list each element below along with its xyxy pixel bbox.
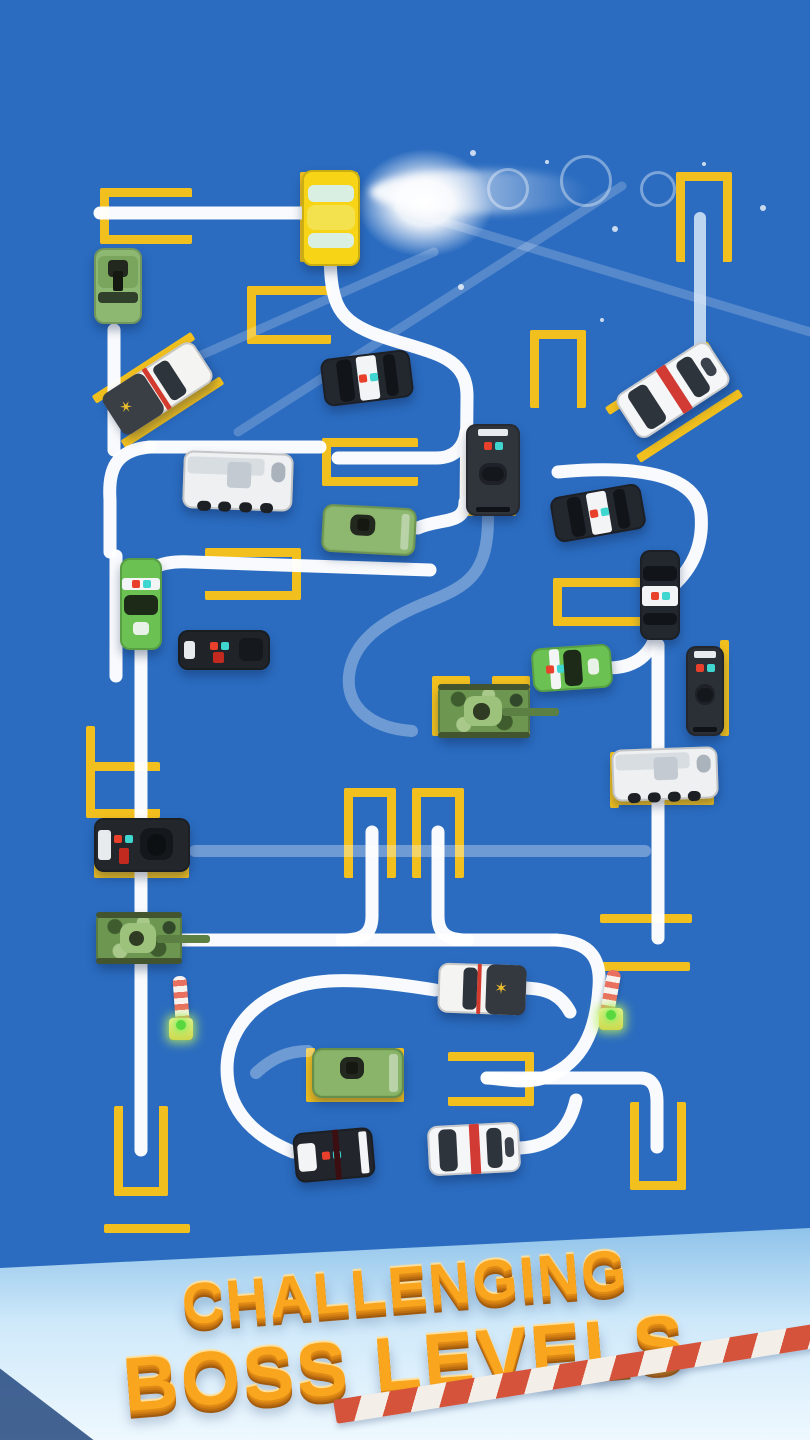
vehicle-police-muscle-right[interactable] <box>549 482 648 543</box>
vehicle-part <box>651 592 659 600</box>
vehicle-green-pickup[interactable] <box>94 248 142 324</box>
vehicle-part <box>587 658 599 675</box>
glow-streak-effect <box>370 170 590 214</box>
vehicle-part <box>438 684 530 690</box>
sparkle-dot <box>470 150 476 156</box>
parking-marker <box>630 1102 686 1190</box>
vehicle-part <box>438 732 530 738</box>
vehicle-part <box>122 578 160 590</box>
vehicle-police-vert-right[interactable] <box>640 550 680 640</box>
route-path <box>418 502 465 528</box>
parking-marker <box>530 330 586 408</box>
sparkle-dot <box>760 205 766 211</box>
vehicle-part <box>707 664 715 672</box>
vehicle-part <box>546 665 555 674</box>
vehicle-part <box>124 595 158 615</box>
vehicle-part <box>462 967 478 1009</box>
sparkle-dot <box>458 284 464 290</box>
vehicle-part <box>218 501 232 511</box>
vehicle-swat-truck-left[interactable] <box>94 818 190 872</box>
sheriff-star-icon: ✶ <box>494 980 513 999</box>
vehicle-armored-truck-mid[interactable] <box>182 450 294 512</box>
vehicle-part <box>239 502 253 512</box>
vehicle-part <box>210 642 218 650</box>
vehicle-part <box>98 830 111 860</box>
route-path <box>520 1100 576 1148</box>
vehicle-part <box>566 496 587 538</box>
vehicle-part <box>308 233 354 247</box>
vehicle-part <box>96 958 182 964</box>
vehicle-part <box>476 507 511 513</box>
vehicle-part <box>184 641 195 659</box>
vehicle-part <box>626 382 668 431</box>
vehicle-part <box>668 791 681 801</box>
vehicle-part <box>688 791 701 801</box>
vehicle-part <box>382 354 399 397</box>
vehicle-part <box>147 834 166 856</box>
vehicle-part <box>369 373 378 382</box>
vehicle-part <box>478 429 508 436</box>
vehicle-sheriff-truck-bottom[interactable]: ✶ <box>437 962 527 1015</box>
vehicle-part <box>96 912 182 918</box>
barrier-pole <box>172 976 189 1023</box>
vehicle-part <box>358 1131 370 1174</box>
parking-marker <box>600 914 692 923</box>
barrier-pole <box>600 969 621 1013</box>
vehicle-black-race[interactable] <box>292 1127 376 1184</box>
vehicle-part <box>643 613 677 625</box>
route-path <box>608 636 656 668</box>
vehicle-part <box>113 271 123 291</box>
tank-barrel <box>502 708 559 716</box>
parking-marker <box>205 548 301 600</box>
vehicle-part <box>563 649 583 686</box>
parking-marker <box>344 788 396 878</box>
vehicle-part <box>484 442 492 450</box>
parking-marker <box>86 762 160 818</box>
vehicle-part <box>482 467 504 481</box>
game-board: ✦✶✶ <box>0 0 810 1440</box>
parking-marker <box>412 788 464 878</box>
vehicle-part <box>307 205 355 230</box>
parking-marker <box>247 286 331 344</box>
vehicle-part <box>589 509 598 518</box>
vehicle-white-race[interactable] <box>427 1122 521 1177</box>
smoke-ring-effect <box>487 168 529 210</box>
barrier-pole-light <box>606 1010 616 1020</box>
vehicle-part <box>642 586 678 606</box>
vehicle-green-truck-bottom[interactable] <box>312 1048 404 1098</box>
vehicle-part <box>321 1151 330 1160</box>
vehicle-part <box>438 1129 459 1172</box>
vehicle-part <box>600 507 609 516</box>
barrier-pole-light <box>176 1020 186 1030</box>
vehicle-part <box>143 580 151 588</box>
vehicle-part <box>197 501 211 511</box>
vehicle-part <box>389 1054 397 1092</box>
vehicle-part <box>125 835 133 843</box>
vehicle-part <box>505 1137 515 1157</box>
vehicle-part <box>696 664 704 672</box>
vehicle-green-police-vert[interactable] <box>120 558 162 650</box>
vehicle-part <box>133 622 148 635</box>
parking-marker <box>676 172 732 262</box>
route-path <box>110 447 150 552</box>
vehicle-part <box>627 793 640 803</box>
vehicle-part <box>271 462 286 482</box>
vehicle-swat-van[interactable] <box>466 424 520 516</box>
vehicle-part <box>654 757 678 781</box>
vehicle-part <box>221 642 229 650</box>
vehicle-yellow-car[interactable] <box>302 170 360 266</box>
vehicle-part <box>132 580 140 588</box>
vehicle-black-suv[interactable] <box>178 630 270 670</box>
vehicle-part <box>227 462 252 488</box>
vehicle-part <box>697 688 712 702</box>
parking-marker <box>100 188 192 244</box>
smoke-ring-effect <box>560 155 612 207</box>
vehicle-part <box>473 703 490 719</box>
sparkle-dot <box>612 226 618 232</box>
vehicle-armored-truck-right[interactable] <box>611 746 719 802</box>
vehicle-police-muscle-top[interactable] <box>319 349 414 408</box>
vehicle-green-van[interactable] <box>321 504 417 557</box>
vehicle-part <box>693 727 717 732</box>
tank-barrel <box>156 935 209 943</box>
vehicle-part <box>696 755 710 773</box>
game-screenshot: ✦✶✶ CHALLENGING BOSS LEVELS <box>0 0 810 1440</box>
parking-marker <box>448 1052 534 1106</box>
vehicle-part <box>358 374 367 383</box>
vehicle-green-sports[interactable] <box>531 643 614 692</box>
parking-marker <box>114 1106 168 1196</box>
smoke-ring-effect <box>640 171 676 207</box>
vehicle-swat-suv-right[interactable] <box>686 646 724 736</box>
vehicle-part <box>662 592 670 600</box>
vehicle-part <box>260 503 274 513</box>
vehicle-part <box>332 1130 343 1180</box>
sparkle-dot <box>545 160 549 164</box>
route-path-faded <box>256 1051 308 1073</box>
parking-marker <box>322 438 418 486</box>
vehicle-part <box>308 185 354 201</box>
vehicle-part <box>98 292 138 303</box>
vehicle-part <box>114 835 122 843</box>
route-path <box>522 988 570 1012</box>
vehicle-part <box>486 1128 503 1169</box>
vehicle-part <box>213 652 224 663</box>
vehicle-part <box>643 566 677 580</box>
parking-marker <box>553 578 641 626</box>
sparkle-dot <box>600 318 604 322</box>
vehicle-part <box>119 848 129 864</box>
vehicle-part <box>336 359 355 402</box>
vehicle-part <box>613 488 632 529</box>
vehicle-part <box>469 1124 481 1174</box>
vehicle-part <box>616 752 691 770</box>
vehicle-tank-left[interactable] <box>96 912 182 964</box>
vehicle-part <box>357 519 370 531</box>
vehicle-part <box>648 792 661 802</box>
vehicle-part <box>346 1062 358 1074</box>
vehicle-part <box>297 1143 317 1172</box>
vehicle-part <box>239 638 263 661</box>
vehicle-part <box>495 442 503 450</box>
vehicle-tank-mid[interactable] <box>438 684 530 738</box>
vehicle-part <box>694 651 715 658</box>
sparkle-dot <box>702 162 706 166</box>
